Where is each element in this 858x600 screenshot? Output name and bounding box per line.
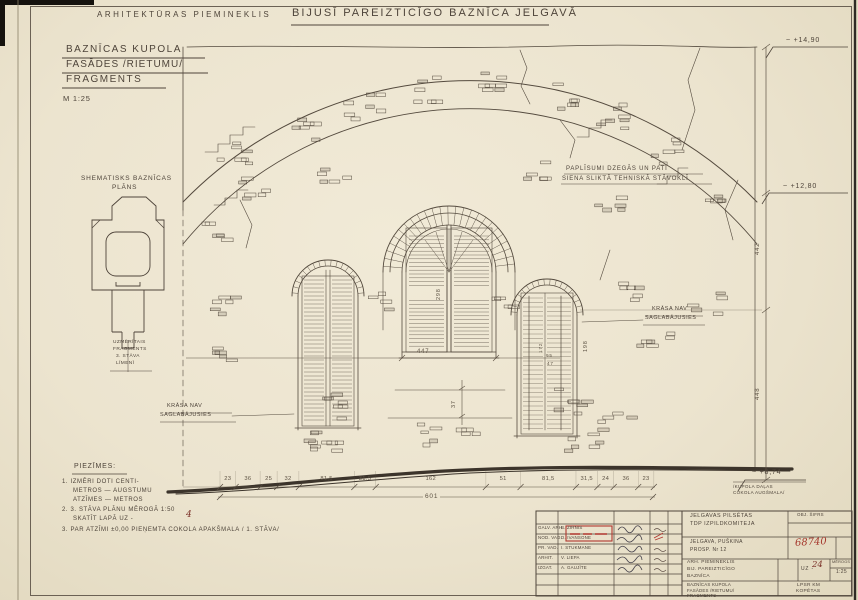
not-preserved-right-1: KRĀSA NAV (652, 307, 687, 313)
dim-chain-value: 23 (642, 477, 649, 483)
tb-scale-label: MĒROGS (832, 561, 850, 565)
plan-note-2: FRAGMENTS (113, 348, 147, 353)
tb-org-2: TDP IZPILDKOMITEJA (690, 522, 755, 527)
tb-proj-3: BAZNĪCA (687, 575, 710, 580)
elevation-top: ~ +14,90 (786, 37, 820, 44)
plan-note-3: 3. STĀVA (116, 355, 140, 360)
tb-proj-2: BIJ. PAREIZTICĪGO (687, 568, 735, 573)
tb-staff-role: PR. VAD. (538, 546, 558, 550)
header-title: BIJUSĪ PAREIZTICĪGO BAZNĪCA JELGAVĀ (292, 8, 578, 19)
tb-obj-cipher-label: OBJ. ŠIFRS (797, 513, 824, 517)
dim-right-h3: 47 (547, 362, 554, 367)
elevation-mid: ~ +12,80 (783, 183, 817, 190)
dim-chain-value: 81,5 (320, 477, 332, 483)
notes-title: PIEZĪMES: (74, 463, 116, 470)
header-left: ARHITEKTŪRAS PIEMINEKLIS (97, 11, 271, 19)
drawing-scale: M 1:25 (63, 95, 91, 103)
tb-addr-2: PROSP. Nr 12 (690, 548, 727, 553)
tb-draw-3: FRAGMENTS (687, 594, 716, 598)
tb-sheet-number: 24 (812, 561, 823, 570)
not-preserved-left-2: SAGLABĀJUSIES (160, 413, 211, 419)
plan-note-1: UZMĒRĪTAIS (113, 341, 146, 346)
dim-chain-value: 24 (602, 477, 609, 483)
note-2b: SKATĪT LAPĀ UZ - (73, 516, 133, 522)
dim-v-lower: 448 (755, 388, 761, 400)
crack-note-2: SIENA SLIKTĀ TEHNISKĀ STĀVOKLĪ (562, 176, 689, 182)
note-1b: METROS — AUGSTUMU (73, 488, 152, 494)
title-box-line1: BAZNĪCAS KUPOLA (66, 45, 182, 55)
dim-plinth: 37 (452, 400, 458, 408)
tb-archive-2: KOPĒTAS (796, 590, 820, 595)
note-1a: 1. IZMĒRI DOTI CENTI- (62, 479, 139, 485)
socle-note-1: /KUPOLA DAĻAS (733, 485, 773, 490)
tb-staff-role: NOD. VAD. (538, 536, 562, 540)
dim-chain-value: 162 (426, 477, 437, 483)
signatures (617, 526, 666, 572)
dim-v-upper: 442 (755, 243, 761, 255)
tb-scale-value: 1:25 (836, 570, 847, 575)
note-2a: 2. 3. STĀVA PLĀNU MĒROGĀ 1:50 (62, 507, 175, 513)
plan-note-4: LĪMENĪ (116, 362, 134, 367)
tb-staff-role: ARHIT. (538, 556, 553, 560)
note-2-page-handwritten: 4 (186, 511, 192, 520)
dim-chain-value: 31,5 (580, 477, 592, 483)
dim-chain-value: 32 (284, 477, 291, 483)
tb-stamp-number: 68740 (795, 537, 827, 549)
tb-staff-name: D. IVANSONE (561, 536, 591, 540)
elevation-socle: ~ +8,74 (752, 469, 781, 476)
tb-proj-1: ARH. PIEMINEKLIS (687, 561, 735, 566)
title-box-line2: FASĀDES /RIETUMU/ (66, 60, 183, 70)
dim-chain-value: 31,5 (359, 477, 371, 483)
dim-right-side: 198 (584, 340, 590, 352)
tb-org-1: JELGAVAS PILSĒTAS (690, 514, 752, 519)
dim-right-h1: 172 (539, 343, 544, 353)
tb-staff-name: A. GAUJĪTE (561, 566, 587, 570)
socle-note-2: COKOLA AUGŠMALA/ (733, 491, 785, 496)
not-preserved-left-1: KRĀSA NAV (167, 404, 202, 410)
dim-right-h2: 95 (546, 354, 553, 359)
note-3: 3. PAR ATZĪMI ±0,00 PIEŅEMTA COKOLA APAK… (62, 527, 279, 533)
tb-staff-name: B. ZIRNIS (561, 526, 583, 530)
title-box-line3: FRAGMENTS (66, 75, 142, 85)
dim-chain-value: 36 (244, 477, 251, 483)
note-1c: ATZĪMES — METROS (73, 497, 143, 503)
tb-staff-role: IZGAT. (538, 566, 553, 570)
generated-linework (183, 72, 728, 500)
tb-staff-name: V. LIEPA (561, 556, 580, 560)
dim-chain-value: 51 (500, 477, 507, 483)
drawing-sheet: ARHITEKTŪRAS PIEMINEKLIS BIJUSĪ PAREIZTI… (0, 0, 858, 600)
not-preserved-right-2: SAGLABĀJUSIES (645, 316, 696, 322)
facade-linework (168, 45, 792, 494)
dim-chain-value: 23 (224, 477, 231, 483)
dim-center-width: 447 (417, 349, 429, 355)
dim-total: 601 (423, 494, 440, 501)
dim-chain-value: 81,5 (542, 477, 554, 483)
tb-addr-1: JELGAVA, PUŠKINA (690, 540, 743, 545)
crack-note-1: PAPLĪSUMI DZEGĀS UN PATI (566, 166, 668, 172)
dim-center-sash: 298 (437, 288, 443, 300)
plan-label-2: PLĀNS (112, 185, 137, 192)
tb-staff-name: I. STUKMANE (561, 546, 591, 550)
dim-chain-value: 25 (265, 477, 272, 483)
dim-chain-value: 36 (622, 477, 629, 483)
plan-label-1: SHEMATISKS BAZNĪCAS (81, 176, 172, 183)
tb-staff-role: GALV. ARH. (538, 526, 564, 530)
tb-draw-1: BAZNĪCAS KUPOLA (687, 583, 731, 587)
